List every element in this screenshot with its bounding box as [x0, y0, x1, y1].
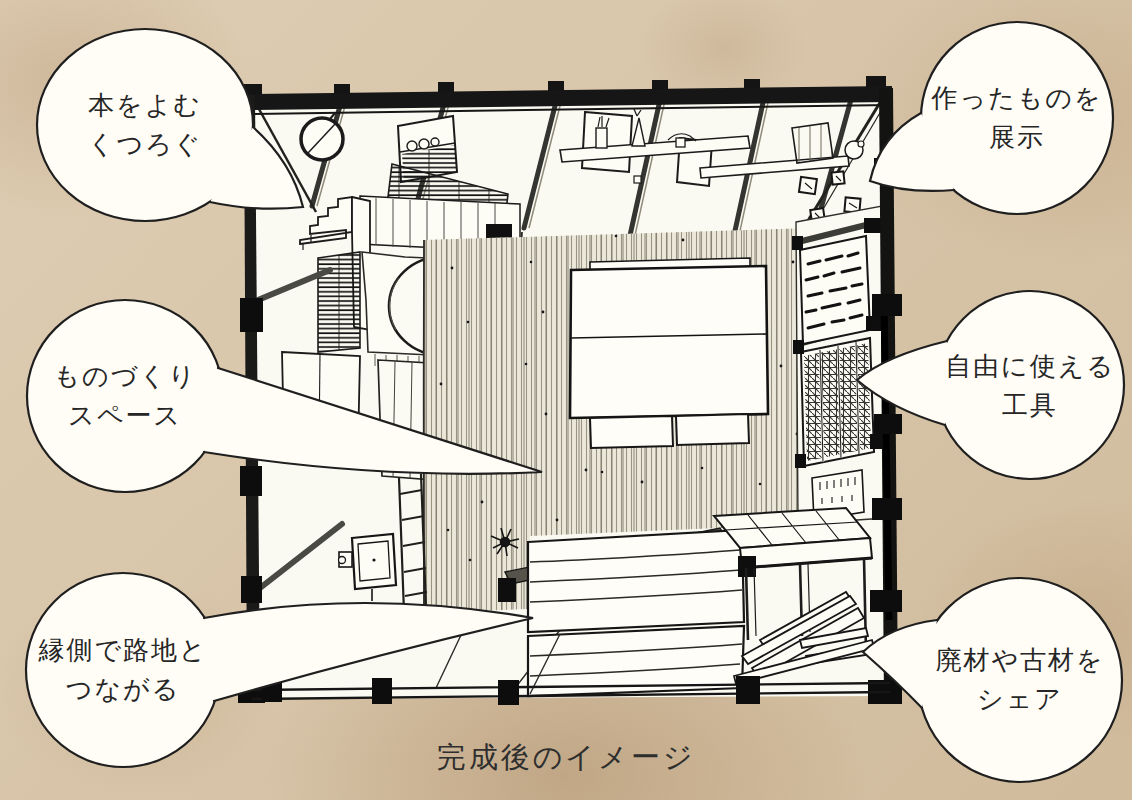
bubble-line: 作ったものを: [907, 79, 1127, 118]
bubble-line: シェア: [910, 680, 1130, 719]
caption: 完成後のイメージ: [366, 738, 766, 778]
bubble-label-engawa-alley: 縁側で路地と つながる: [8, 631, 238, 709]
bubble-line: つながる: [8, 670, 238, 709]
bubble-line: くつろぐ: [35, 125, 255, 164]
bubble-line: スペース: [15, 396, 235, 435]
bubble-label-reading-relax: 本をよむ くつろぐ: [35, 86, 255, 164]
bubble-line: 工具: [920, 386, 1132, 425]
bubble-line: 本をよむ: [35, 86, 255, 125]
illustration-page: 本をよむ くつろぐ ものづくり スペース 縁側で路地と つながる 作ったものを …: [0, 0, 1132, 800]
bubble-line: 縁側で路地と: [8, 631, 238, 670]
bubble-line: 展示: [907, 118, 1127, 157]
bubble-label-free-tools: 自由に使える 工具: [920, 347, 1132, 425]
bubble-line: 廃材や古材を: [910, 641, 1130, 680]
bubble-label-display-works: 作ったものを 展示: [907, 79, 1127, 157]
bubble-line: ものづくり: [15, 357, 235, 396]
bubble-label-share-material: 廃材や古材を シェア: [910, 641, 1130, 719]
bubble-label-making-space: ものづくり スペース: [15, 357, 235, 435]
bubble-line: 自由に使える: [920, 347, 1132, 386]
